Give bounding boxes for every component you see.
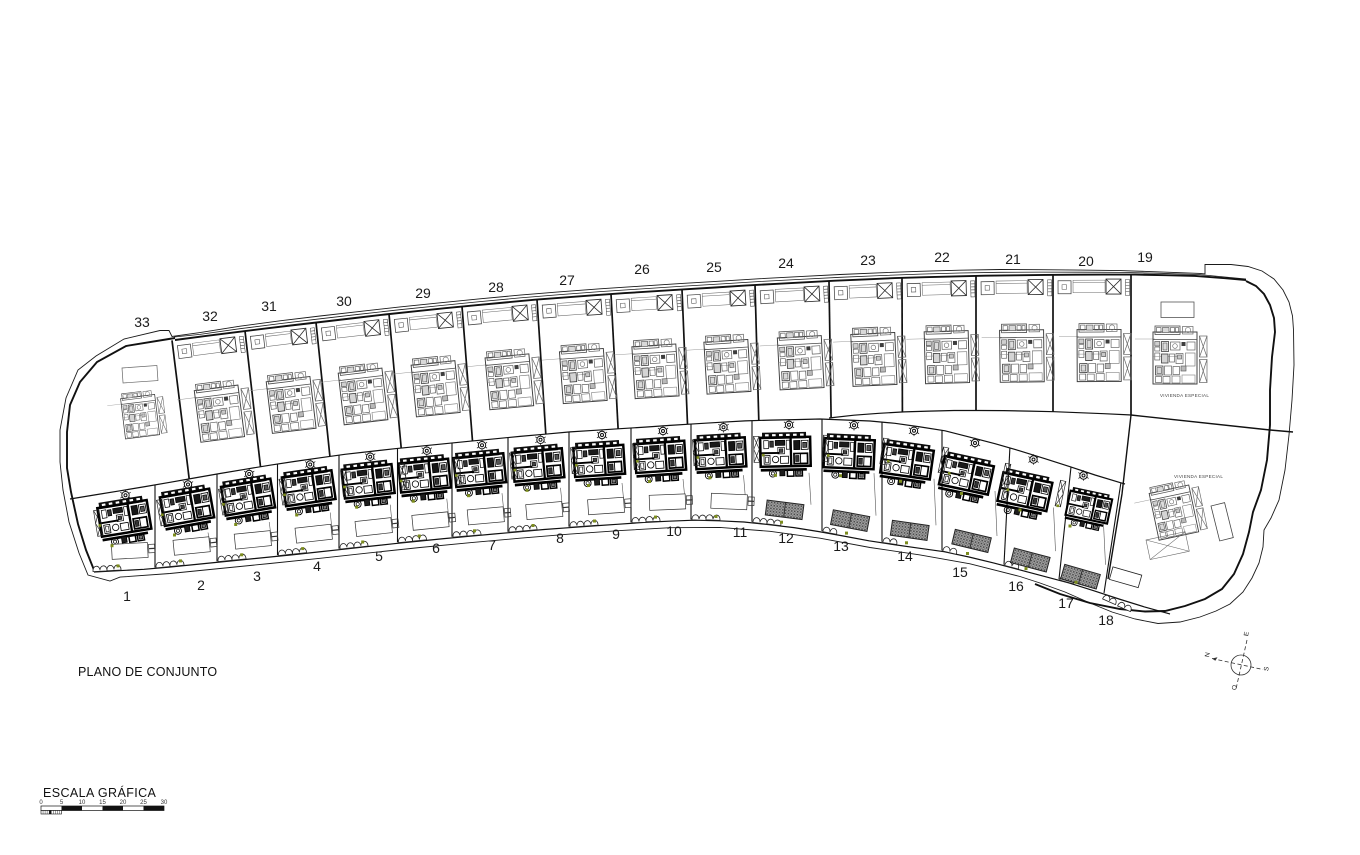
svg-text:15: 15 [952,564,968,580]
svg-text:19: 19 [1137,249,1153,265]
svg-text:25: 25 [140,800,147,806]
svg-text:10: 10 [666,523,682,539]
svg-text:17: 17 [1058,595,1074,611]
svg-text:27: 27 [559,272,575,288]
svg-text:29: 29 [415,285,431,301]
svg-text:10: 10 [79,800,86,806]
svg-text:31: 31 [261,298,277,314]
svg-text:15: 15 [99,800,106,806]
svg-text:18: 18 [1098,612,1114,628]
svg-text:26: 26 [634,261,650,277]
svg-text:2: 2 [197,577,205,593]
svg-text:32: 32 [202,308,218,324]
svg-text:16: 16 [1008,578,1024,594]
svg-text:12: 12 [778,530,794,546]
svg-text:VIVIENDA ESPECIAL: VIVIENDA ESPECIAL [1174,474,1223,479]
svg-text:25: 25 [706,259,722,275]
svg-text:VIVIENDA ESPECIAL: VIVIENDA ESPECIAL [1160,393,1209,398]
svg-text:13: 13 [833,538,849,554]
svg-text:20: 20 [120,800,127,806]
svg-text:20: 20 [1078,253,1094,269]
svg-text:21: 21 [1005,251,1021,267]
svg-text:ESCALA GRÁFICA: ESCALA GRÁFICA [43,785,157,800]
svg-text:23: 23 [860,252,876,268]
svg-text:30: 30 [336,293,352,309]
svg-text:1: 1 [123,588,131,604]
svg-text:PLANO DE CONJUNTO: PLANO DE CONJUNTO [78,665,217,679]
svg-text:3: 3 [253,568,261,584]
svg-text:4: 4 [313,558,321,574]
svg-text:22: 22 [934,249,950,265]
svg-text:33: 33 [134,314,150,330]
svg-text:7: 7 [488,537,496,553]
svg-text:24: 24 [778,255,794,271]
svg-text:6: 6 [432,540,440,556]
svg-text:9: 9 [612,526,620,542]
svg-text:5: 5 [375,548,383,564]
svg-text:11: 11 [733,524,748,540]
svg-text:8: 8 [556,530,564,546]
svg-text:30: 30 [161,800,168,806]
svg-text:14: 14 [897,548,913,564]
svg-text:28: 28 [488,279,504,295]
